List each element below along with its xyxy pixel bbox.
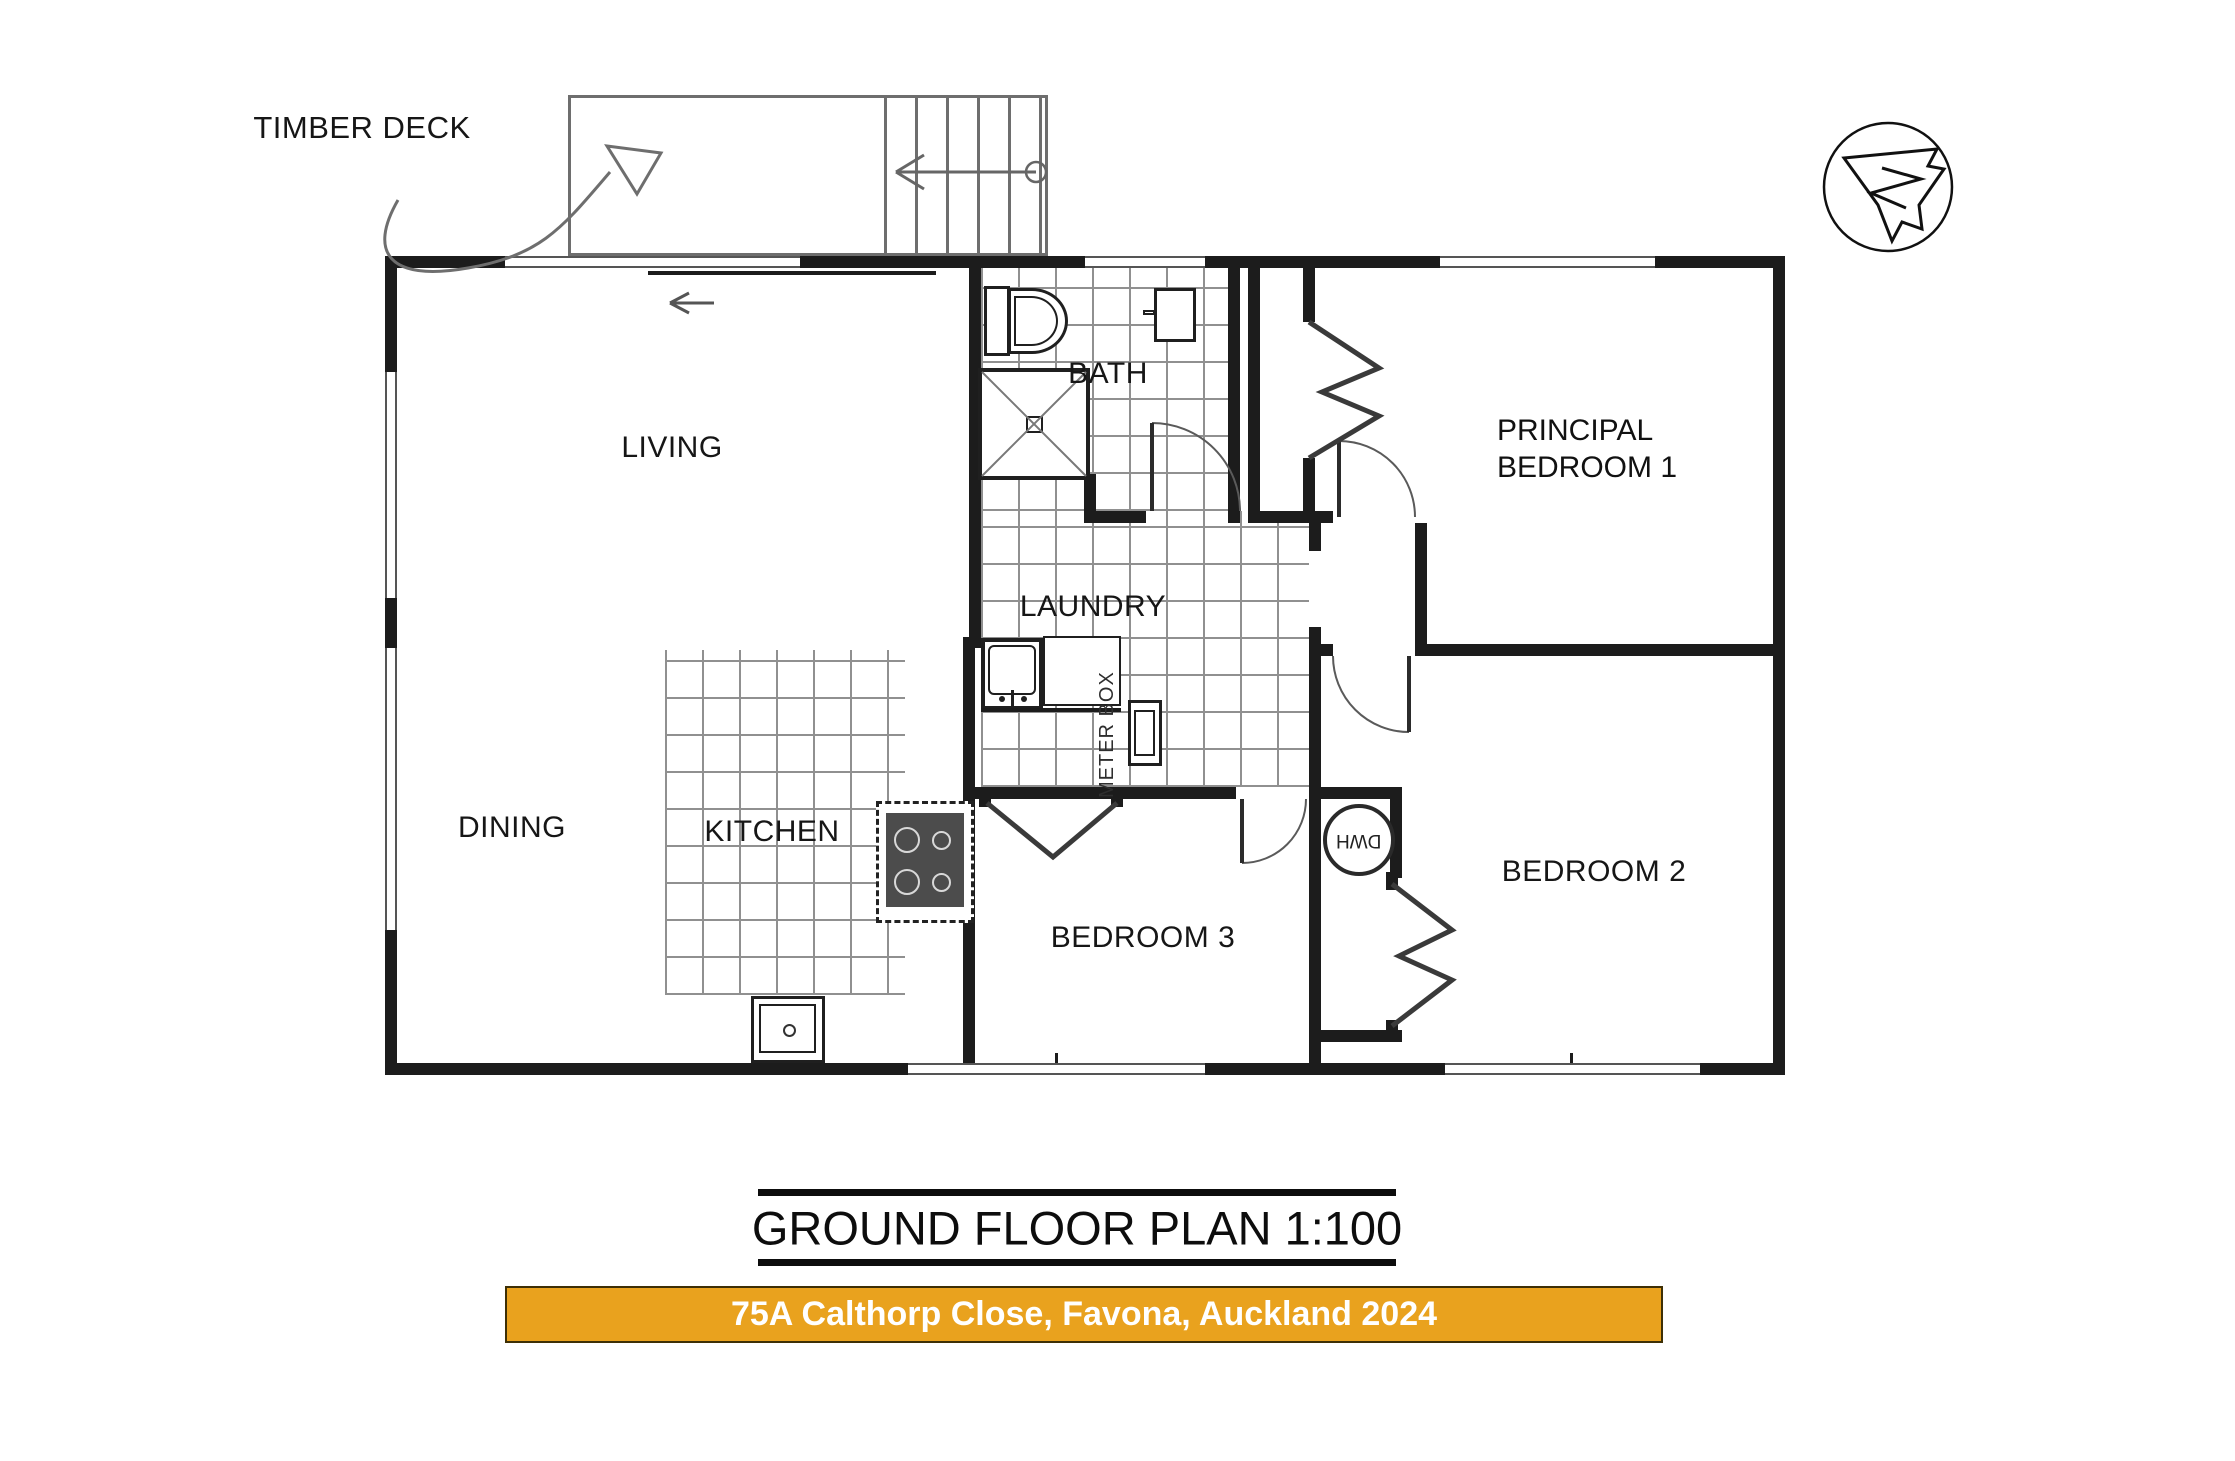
bedroom2-north-wall-left xyxy=(1309,644,1333,656)
vestibule-east-wall xyxy=(1415,523,1427,656)
toilet-cistern xyxy=(984,286,1010,356)
room-label-principal-line1: PRINCIPAL xyxy=(1497,412,1677,449)
principal-closet-west-wall xyxy=(1248,256,1260,523)
dining-window xyxy=(385,648,397,930)
plan-title: GROUND FLOOR PLAN 1:100 xyxy=(752,1201,1402,1256)
room-label-laundry: LAUNDRY xyxy=(1020,590,1166,624)
bath-east-wall xyxy=(1228,256,1240,523)
address-banner-text: 75A Calthorp Close, Favona, Auckland 202… xyxy=(731,1295,1437,1334)
stair-tread xyxy=(884,97,887,254)
bedroom2-closet-jamb-top xyxy=(1386,872,1398,890)
laundry-tub-inner xyxy=(988,645,1036,695)
deck-sliding-door xyxy=(505,256,800,268)
north-compass-icon xyxy=(1824,123,1952,251)
room-label-living: LIVING xyxy=(621,431,722,465)
room-label-bedroom3: BEDROOM 3 xyxy=(1051,921,1236,955)
stair-tread xyxy=(977,97,980,254)
window-mullion-tick xyxy=(1570,1053,1573,1063)
timber-deck-label: TIMBER DECK xyxy=(253,110,470,146)
exterior-wall-right xyxy=(1773,256,1785,1075)
stove-burner xyxy=(932,831,951,850)
meter-box-label: METER BOX xyxy=(1096,648,1119,798)
principal-closet-jamb-bottom xyxy=(1303,458,1315,523)
stair-tread xyxy=(946,97,949,254)
dwh-closet-north-wall xyxy=(1309,787,1402,799)
laundry-spout-icon xyxy=(1011,690,1014,706)
stove-burner xyxy=(894,869,920,895)
room-label-principal-line2: BEDROOM 1 xyxy=(1497,449,1677,486)
hot-water-cylinder: DWH xyxy=(1323,804,1395,876)
shower-drain xyxy=(1026,416,1043,433)
bedroom3-east-wall xyxy=(1309,656,1321,1063)
bath-window xyxy=(1085,256,1205,268)
bath-south-connector xyxy=(1084,474,1096,523)
title-rule-bottom xyxy=(758,1259,1396,1266)
bedroom2-window xyxy=(1445,1063,1700,1075)
bedroom3-window xyxy=(908,1063,1205,1075)
laundry-tap-icon xyxy=(999,696,1005,702)
address-banner: 75A Calthorp Close, Favona, Auckland 202… xyxy=(505,1286,1663,1343)
room-label-principal-bedroom: PRINCIPAL BEDROOM 1 xyxy=(1497,412,1677,486)
timber-deck-outline xyxy=(568,95,1048,256)
floor-plan-canvas: TIMBER DECK xyxy=(0,0,2235,1461)
bedroom3-closet-jamb-left xyxy=(979,793,991,807)
stove-cooktop xyxy=(886,813,964,907)
sliding-door-panel xyxy=(648,271,936,275)
sliding-door-arrow xyxy=(670,293,714,313)
title-rule-top xyxy=(758,1189,1396,1196)
stair-tread xyxy=(915,97,918,254)
vanity-basin xyxy=(1154,288,1196,342)
room-label-kitchen: KITCHEN xyxy=(704,815,839,849)
room-label-dining: DINING xyxy=(458,811,566,845)
stove-burner xyxy=(932,873,951,892)
hall-east-jamb-upper xyxy=(1309,523,1321,551)
laundry-tap-icon xyxy=(1021,696,1027,702)
bedroom2-north-wall xyxy=(1415,644,1785,656)
hot-water-cylinder-label: DWH xyxy=(1336,829,1381,851)
kitchen-sink-drain xyxy=(783,1024,796,1037)
bedroom2-closet-south-wall xyxy=(1309,1030,1402,1042)
room-label-bedroom2: BEDROOM 2 xyxy=(1502,855,1687,889)
vanity-tap-handle xyxy=(1143,310,1155,315)
stair-tread xyxy=(1039,97,1042,254)
stove-burner xyxy=(894,827,920,853)
principal-closet-jamb-top xyxy=(1303,256,1315,322)
stair-tread xyxy=(1008,97,1011,254)
living-window xyxy=(385,372,397,598)
window-mullion-tick xyxy=(1055,1053,1058,1063)
room-label-bath: BATH xyxy=(1068,357,1148,391)
principal-closet-south-wall xyxy=(1248,511,1333,523)
principal-bedroom-window xyxy=(1440,256,1655,268)
meter-box-inner xyxy=(1134,710,1155,756)
